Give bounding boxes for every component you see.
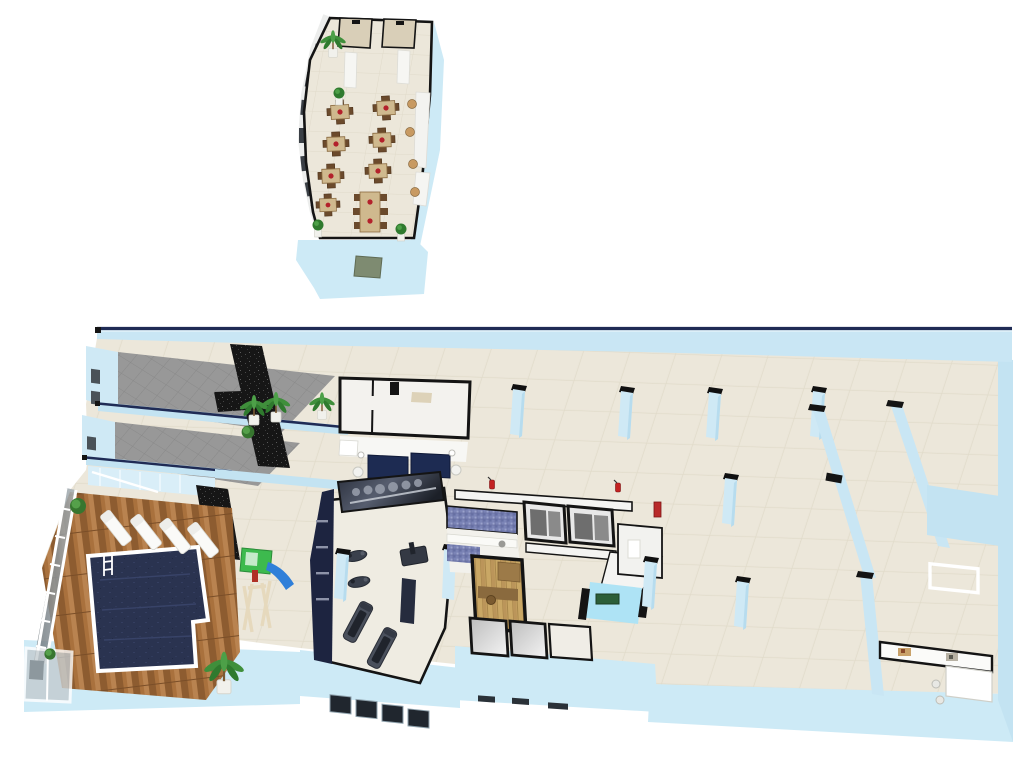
stool — [932, 680, 940, 688]
white-column — [344, 52, 357, 88]
door-opening — [390, 382, 399, 395]
sauna-bucket — [487, 596, 496, 605]
ramp-room-upper-west-wall — [86, 346, 118, 410]
door-gap — [368, 396, 377, 410]
floor-lamp — [358, 452, 364, 458]
lounge-cabinet — [339, 440, 358, 456]
green-wall-sign — [596, 594, 619, 604]
bush — [242, 426, 255, 439]
door-gap — [628, 540, 640, 558]
sauna-shelf — [498, 562, 520, 582]
shower-room — [510, 621, 547, 658]
changing-room — [549, 624, 592, 660]
ramp-room-lower-window — [87, 436, 96, 450]
floorplan-render-canvas — [0, 0, 1024, 768]
side-table — [451, 465, 461, 475]
white-room — [340, 378, 470, 438]
bush — [44, 648, 55, 659]
facade-vent — [354, 256, 382, 278]
shower-room — [470, 618, 508, 656]
floor-lamp — [449, 450, 455, 456]
side-table — [353, 467, 363, 477]
upper-floor-restaurant-plan — [296, 16, 444, 299]
stool — [936, 696, 944, 704]
ground-floor-plan — [24, 327, 1013, 742]
wall-end-cap — [95, 401, 100, 406]
playground-figure — [252, 570, 258, 582]
elevator — [568, 506, 614, 546]
swimming-pool — [88, 547, 208, 671]
dining-table-long — [353, 192, 388, 232]
white-column — [397, 50, 410, 84]
bush — [70, 498, 86, 514]
right-outer-wall — [998, 358, 1013, 742]
floorplan-scene — [0, 0, 1024, 768]
wall-end-cap — [82, 455, 87, 460]
rug — [411, 392, 432, 403]
office-desk — [946, 666, 992, 702]
fire-hose-cabinet — [654, 502, 661, 517]
gym-partition — [400, 578, 416, 624]
bath-figure — [499, 541, 506, 548]
elevator — [524, 502, 566, 543]
wall-end-cap — [95, 327, 101, 333]
